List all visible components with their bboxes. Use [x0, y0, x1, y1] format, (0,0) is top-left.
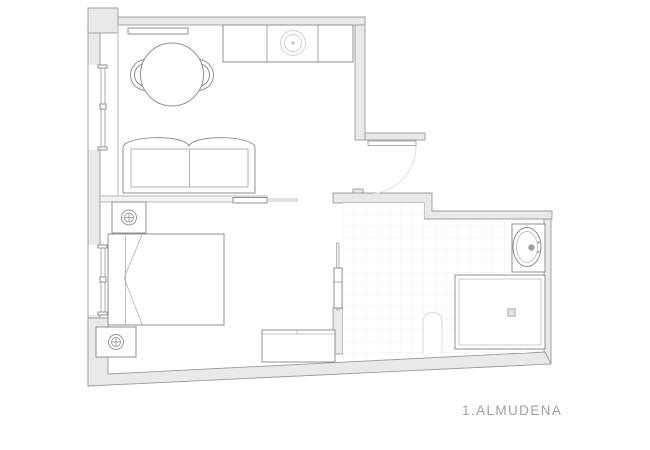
nightstand-upper [112, 202, 146, 233]
faucet-icon [529, 245, 535, 251]
window-frame-cap [98, 245, 107, 248]
floor-plan-page: 1.ALMUDENA [0, 0, 650, 450]
tap-handle-icon [537, 251, 540, 254]
plan-title: 1.ALMUDENA [462, 403, 562, 418]
door-leaf [368, 141, 416, 146]
window-frame-cap [98, 147, 107, 150]
cooktop-burner-center [291, 41, 295, 45]
shower-tray [455, 275, 545, 349]
shower-drain-icon [508, 309, 515, 316]
window-living [89, 65, 108, 150]
wall-top [100, 17, 365, 25]
wall-entry-vertical [355, 25, 365, 140]
window-mullion [100, 277, 106, 282]
dining-table [141, 43, 204, 106]
shower [455, 275, 545, 349]
floor-plan-drawing: 1.ALMUDENA [0, 0, 650, 450]
tap-handle-icon [537, 241, 540, 244]
bathroom [334, 203, 545, 362]
window-frame-cap [98, 312, 107, 315]
partition-sliding-panel [233, 198, 267, 204]
nightstand-lower [96, 327, 136, 357]
washbasin [512, 224, 545, 272]
partition-door-track [267, 199, 297, 201]
sofa-outline [123, 138, 255, 193]
bench-body [262, 330, 335, 362]
sliding-door-panel [334, 268, 342, 308]
kitchen-counter [223, 25, 353, 62]
wall-switch-notch [353, 189, 363, 193]
toilet [423, 313, 442, 355]
dining-set [131, 43, 214, 106]
wall-entry-jut [365, 133, 425, 140]
wall-top-left-pier [88, 8, 118, 33]
bench [262, 330, 335, 362]
bathroom-sliding-door [334, 243, 342, 310]
bedroom-furniture [96, 202, 335, 362]
window-frame-cap [98, 65, 107, 68]
door-swing-arc [368, 146, 416, 194]
washbasin-bowl [513, 228, 541, 267]
wall-shelf [128, 28, 188, 34]
window-bedroom [89, 245, 108, 315]
sofa [123, 138, 255, 193]
entry-door [368, 141, 416, 194]
window-mullion [100, 104, 106, 109]
